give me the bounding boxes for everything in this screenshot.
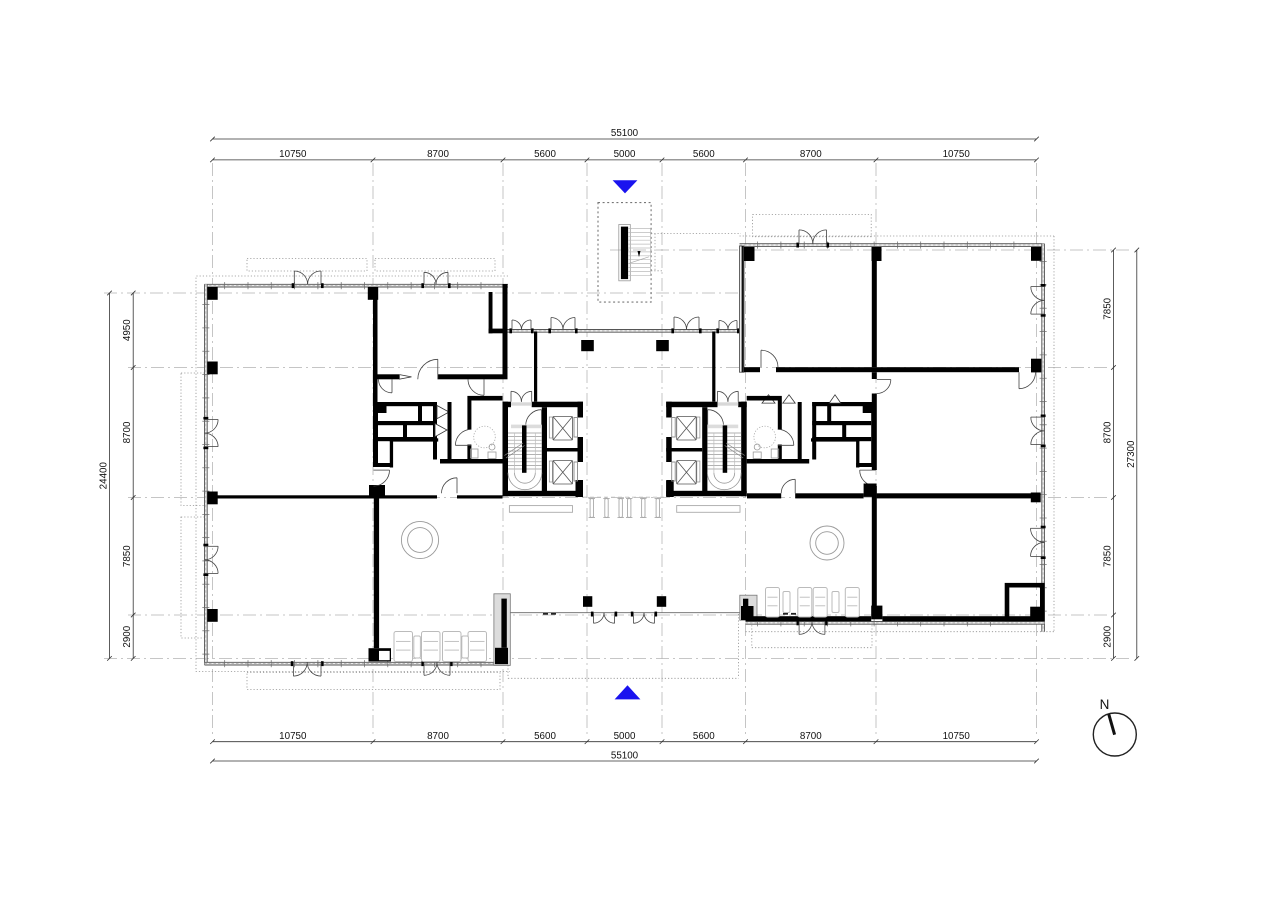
svg-text:27300: 27300: [1126, 440, 1137, 468]
svg-text:2900: 2900: [1103, 625, 1114, 647]
svg-text:8700: 8700: [800, 149, 822, 160]
svg-text:55100: 55100: [611, 128, 639, 139]
svg-text:55100: 55100: [611, 750, 639, 761]
svg-text:N: N: [1100, 697, 1110, 712]
svg-text:10750: 10750: [943, 149, 971, 160]
svg-text:8700: 8700: [427, 731, 449, 742]
svg-text:8700: 8700: [800, 731, 822, 742]
svg-text:5600: 5600: [693, 731, 715, 742]
svg-text:5000: 5000: [614, 731, 636, 742]
svg-text:4950: 4950: [122, 319, 133, 341]
svg-text:5600: 5600: [534, 731, 556, 742]
svg-text:5000: 5000: [614, 149, 636, 160]
svg-text:8700: 8700: [1103, 421, 1114, 443]
svg-text:10750: 10750: [279, 731, 307, 742]
svg-text:10750: 10750: [943, 731, 971, 742]
svg-text:24400: 24400: [99, 462, 110, 490]
svg-text:5600: 5600: [534, 149, 556, 160]
svg-text:7850: 7850: [122, 545, 133, 567]
svg-text:5600: 5600: [693, 149, 715, 160]
svg-text:8700: 8700: [427, 149, 449, 160]
svg-text:8700: 8700: [122, 421, 133, 443]
svg-text:7850: 7850: [1103, 545, 1114, 567]
svg-text:2900: 2900: [122, 625, 133, 647]
svg-text:7850: 7850: [1103, 297, 1114, 319]
svg-text:10750: 10750: [279, 149, 307, 160]
